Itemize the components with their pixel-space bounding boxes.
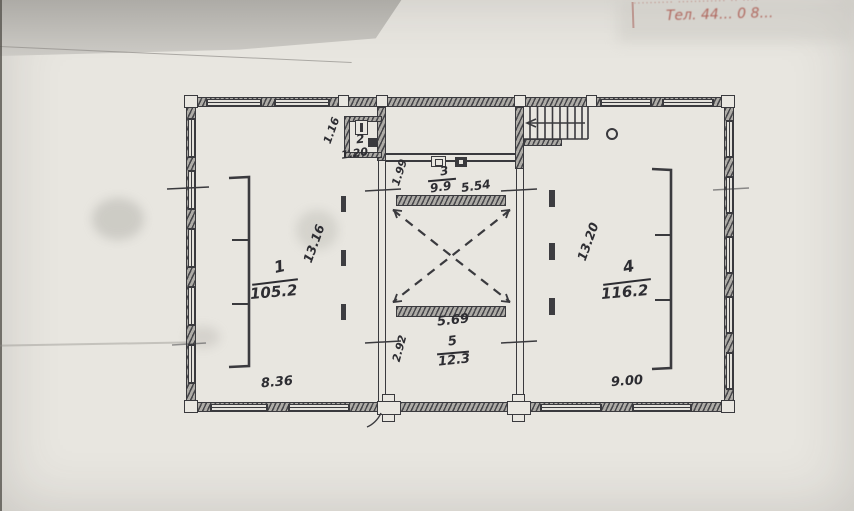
shaft-wall-top: [396, 195, 506, 206]
room4-counter-bracket: [652, 169, 671, 369]
window: [726, 296, 733, 334]
window: [188, 228, 195, 268]
paper-left-edge: [0, 0, 2, 511]
window: [726, 236, 733, 274]
pier-block: [586, 95, 597, 107]
room3-area: 9.9: [429, 179, 452, 196]
stair-direction-arrow-icon: [527, 119, 536, 127]
pier-block: [376, 95, 388, 107]
corner-block: [184, 400, 198, 413]
dim-1-16: 1.16: [321, 116, 342, 146]
red-ink-stamp: ·········· ············ ·· ···· Тел. 44……: [633, 0, 854, 39]
core-wall-right-solid: [515, 107, 524, 169]
sink-fixture-mark: [459, 160, 463, 164]
column-mark: [549, 298, 555, 315]
window: [274, 99, 330, 106]
window: [288, 404, 350, 411]
room4-number: 4: [621, 256, 636, 277]
window: [726, 352, 733, 390]
dim-5-69: 5.69: [436, 311, 469, 329]
partition-line: [386, 153, 516, 155]
column-mark: [549, 243, 555, 260]
paper-crease: [0, 341, 190, 346]
dim-1-20: 1.20: [340, 145, 369, 162]
window: [188, 344, 195, 384]
window: [540, 404, 602, 411]
room1-number: 1: [272, 256, 287, 277]
pier-block: [514, 95, 526, 107]
window: [210, 404, 268, 411]
cross-column: [377, 394, 401, 422]
dim-5-54: 5.54: [460, 177, 491, 195]
room1-area: 105.2: [249, 281, 298, 303]
window: [600, 99, 652, 106]
dim-13-20: 13.20: [574, 220, 602, 262]
dim-1-99: 1.99: [389, 158, 410, 188]
dim-2-92: 2.92: [390, 334, 410, 364]
corner-block: [721, 95, 735, 108]
room4-area: 116.2: [600, 281, 649, 303]
window: [662, 99, 714, 106]
stairs: [524, 107, 588, 139]
room3-number: 3: [439, 163, 449, 178]
corner-block: [721, 400, 735, 413]
pier-block: [338, 95, 349, 107]
room5-number: 5: [447, 333, 458, 349]
cross-column: [507, 394, 531, 422]
corner-block: [184, 95, 198, 108]
window: [188, 170, 195, 210]
column-mark: [341, 250, 346, 266]
column-mark: [341, 304, 346, 320]
cross-column-h: [507, 401, 531, 415]
round-column: [607, 129, 617, 139]
window: [206, 99, 262, 106]
shaft-cross-icon: [393, 210, 510, 302]
sink-fixture: [368, 138, 377, 147]
window: [188, 286, 195, 326]
room1-counter-bracket: [229, 177, 249, 367]
room5-area: 12.3: [437, 351, 470, 369]
dim-9-00: 9.00: [611, 373, 644, 390]
window: [726, 120, 733, 158]
window: [726, 176, 733, 214]
dim-8-36: 8.36: [260, 374, 293, 392]
stair-wall: [524, 139, 562, 146]
shaft-cross-arrowheads: [394, 210, 509, 302]
window: [632, 404, 692, 411]
scanned-floor-plan-photo: 1 105.2 4 116.2 3 9.9 5 12.3 2 5.54 5.69…: [0, 0, 854, 511]
window: [188, 118, 195, 158]
paper-stain: [92, 198, 144, 240]
room2-number: 2: [355, 132, 365, 147]
column-mark: [549, 190, 555, 207]
column-mark: [341, 196, 346, 212]
cross-column-h: [377, 401, 401, 415]
